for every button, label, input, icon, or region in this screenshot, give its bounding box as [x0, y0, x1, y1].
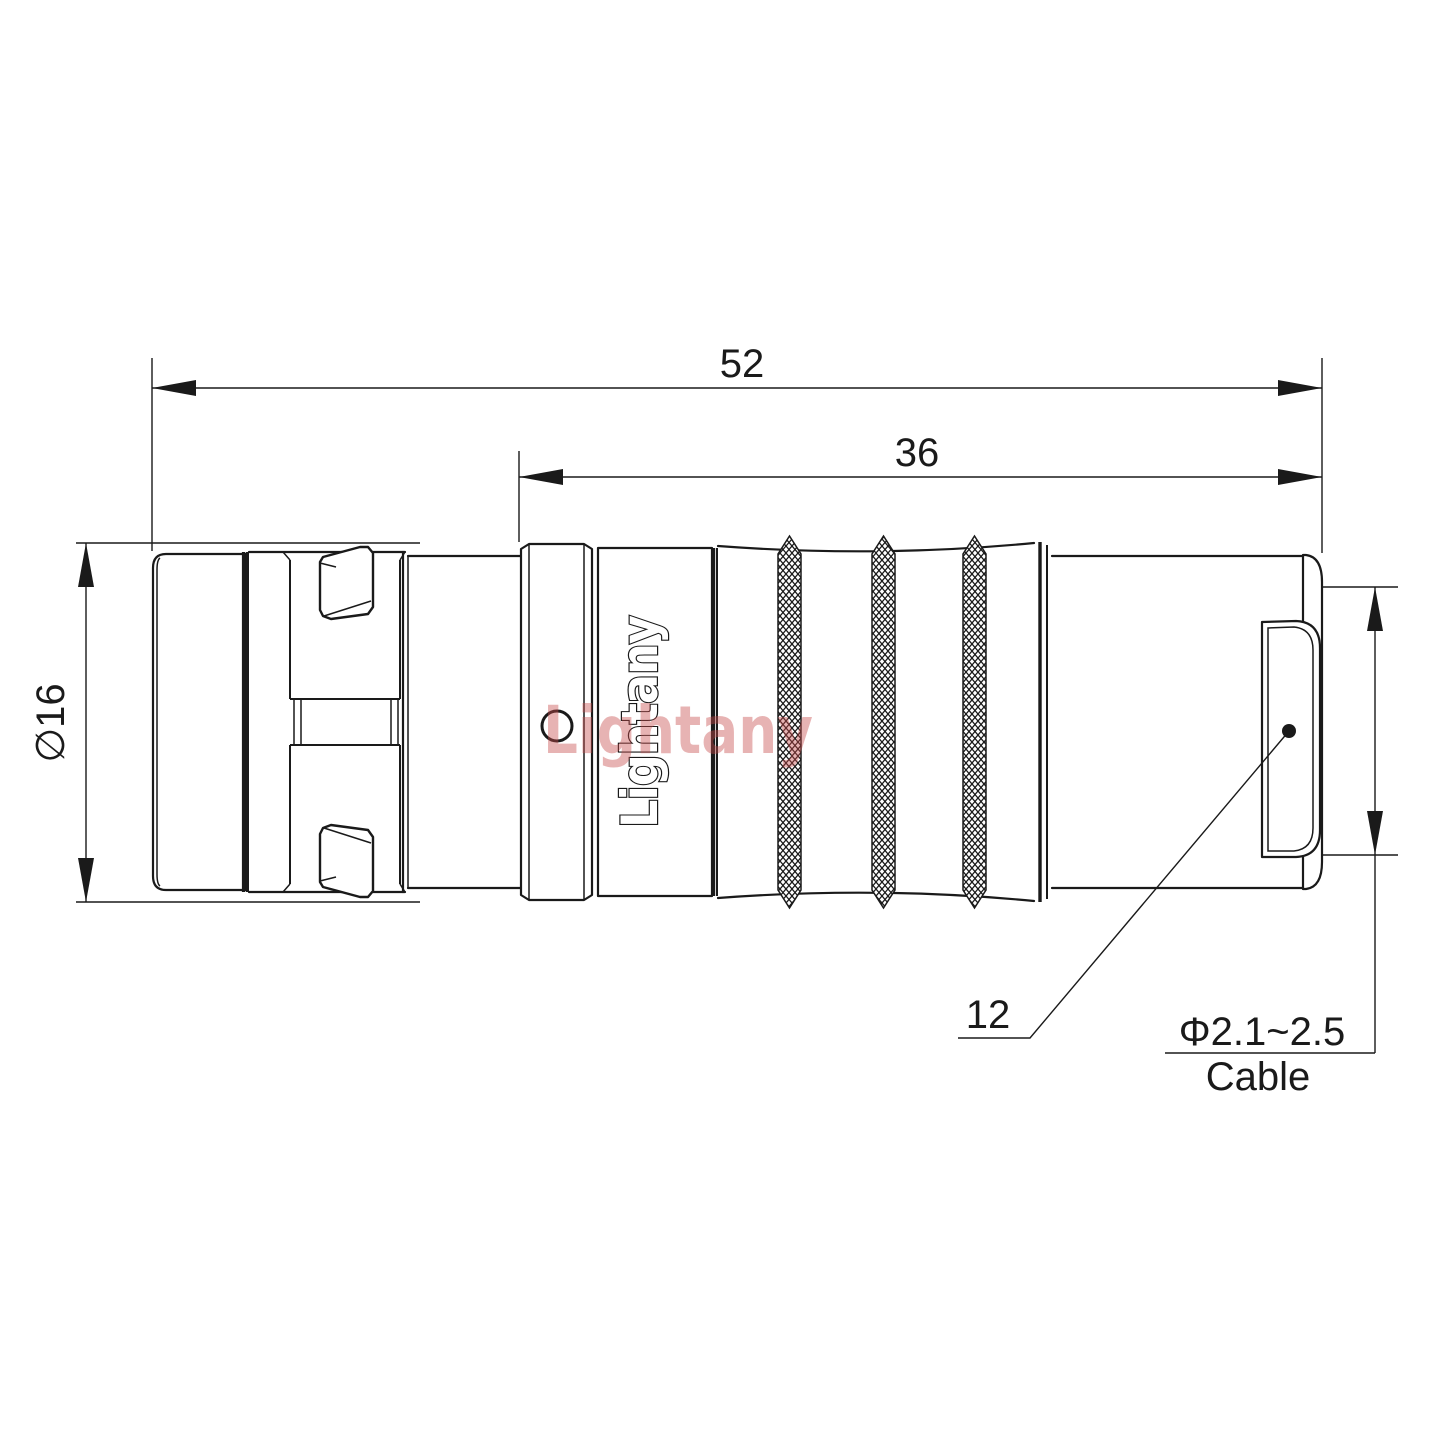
dim-overall-length-value: 52	[720, 342, 765, 386]
dim-body-length-value: 36	[895, 431, 940, 475]
latch-tab-bottom	[320, 825, 373, 897]
item-ref-label: 12	[966, 993, 1011, 1037]
drawing-canvas: Lightany	[0, 0, 1440, 1440]
cable-entry-bushing	[1262, 621, 1320, 857]
connector-technical-drawing: Lightany	[0, 0, 1440, 1440]
knurl-band	[872, 536, 895, 908]
dim-shell-diameter-value: ∅16	[29, 683, 73, 762]
knurl-band	[963, 536, 986, 908]
leader-dot	[1282, 724, 1296, 738]
mid-section-edges	[408, 556, 521, 888]
brand-watermark: Lightany	[543, 692, 813, 769]
front-shell	[153, 554, 246, 890]
latch-tab-top	[320, 547, 373, 619]
cable-size-label: Φ2.1~2.5	[1179, 1010, 1345, 1054]
dim-overall-length: 52	[152, 342, 1322, 553]
cable-label: Cable	[1206, 1055, 1311, 1099]
dim-body-length: 36	[519, 431, 1322, 542]
